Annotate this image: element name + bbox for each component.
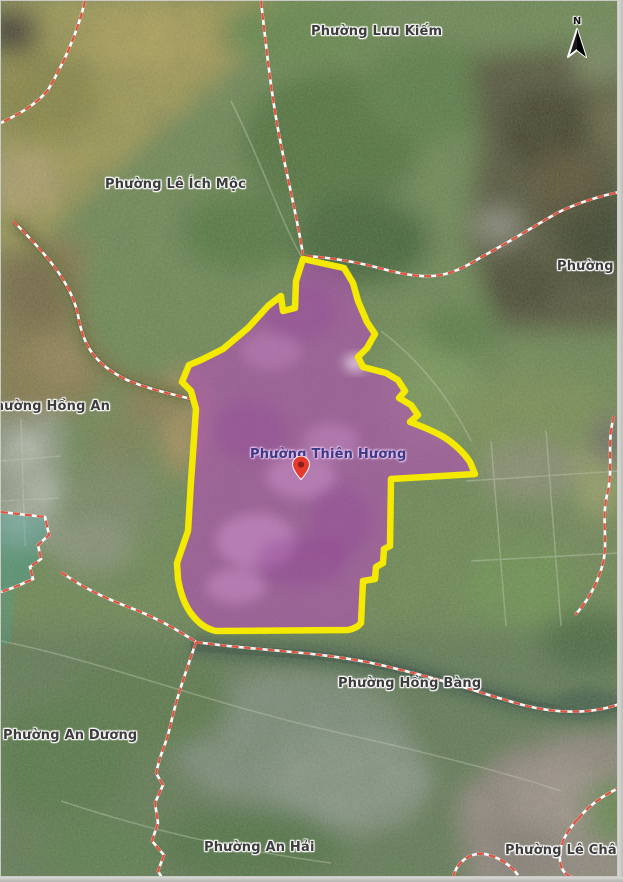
page-edge-right: [618, 0, 623, 882]
north-arrow-icon: [562, 27, 592, 61]
map-viewport: Phường Lưu Kiếm Phường Lê Ích Mộc Phường…: [0, 0, 623, 882]
satellite-basemap[interactable]: [1, 1, 618, 877]
ward-label-hong-an: Phường Hồng An: [0, 399, 110, 414]
ward-label-le-ich-moc: Phường Lê Ích Mộc: [105, 177, 246, 192]
compass-n-label: N: [562, 17, 592, 27]
location-pin-icon: [292, 456, 310, 480]
ward-label-hoa: Phường Hòa: [557, 259, 618, 274]
ward-label-le-chan: Phường Lê Chân: [505, 843, 618, 858]
ward-label-thien-huong: Phường Thiên Hương: [250, 447, 406, 462]
page-edge-bottom: [0, 877, 623, 882]
map-canvas[interactable]: Phường Lưu Kiếm Phường Lê Ích Mộc Phường…: [0, 0, 618, 877]
ward-label-luu-kiem: Phường Lưu Kiếm: [311, 24, 442, 39]
north-arrow: N: [562, 17, 592, 65]
ward-label-hong-bang: Phường Hồng Bàng: [338, 676, 481, 691]
ward-label-an-hai: Phường An Hải: [204, 840, 315, 855]
ward-label-an-duong: Phường An Dương: [3, 728, 137, 743]
